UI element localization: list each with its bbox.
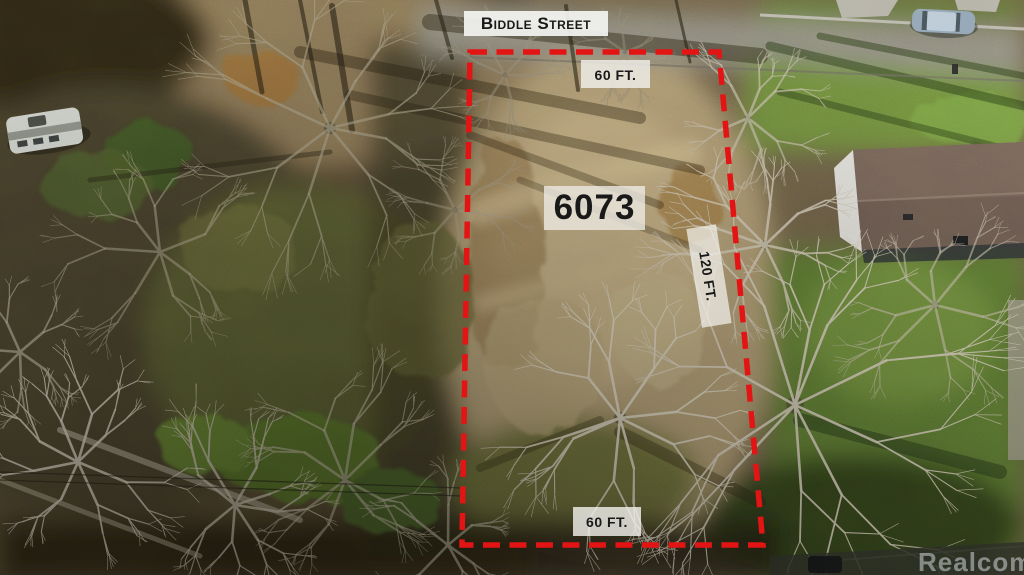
aerial-lot-photo: Biddle Street 60 FT. 6073 120 FT. 60 FT.…	[0, 0, 1024, 575]
vignette	[0, 0, 1024, 575]
realcomp-watermark: Realcomp	[918, 547, 1024, 575]
front-dimension-label: 60 FT.	[581, 60, 650, 88]
rear-dimension-label: 60 FT.	[573, 507, 641, 536]
lot-number-label: 6073	[544, 186, 645, 230]
aerial-photo-background	[0, 0, 1024, 575]
street-name-label: Biddle Street	[464, 11, 608, 36]
